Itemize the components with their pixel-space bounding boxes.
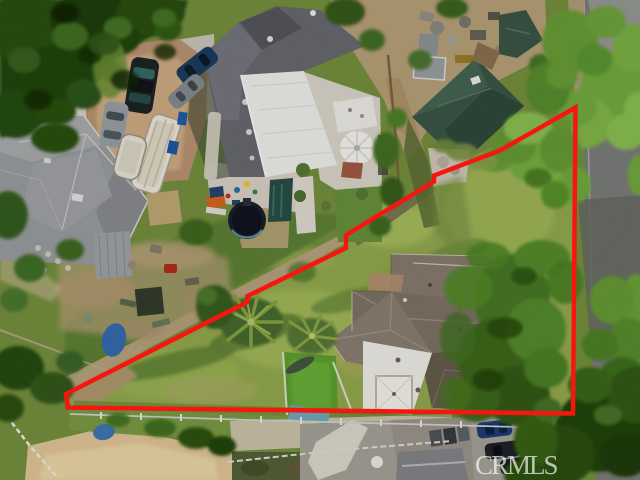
svg-text:CRMLS: CRMLS	[475, 450, 559, 480]
